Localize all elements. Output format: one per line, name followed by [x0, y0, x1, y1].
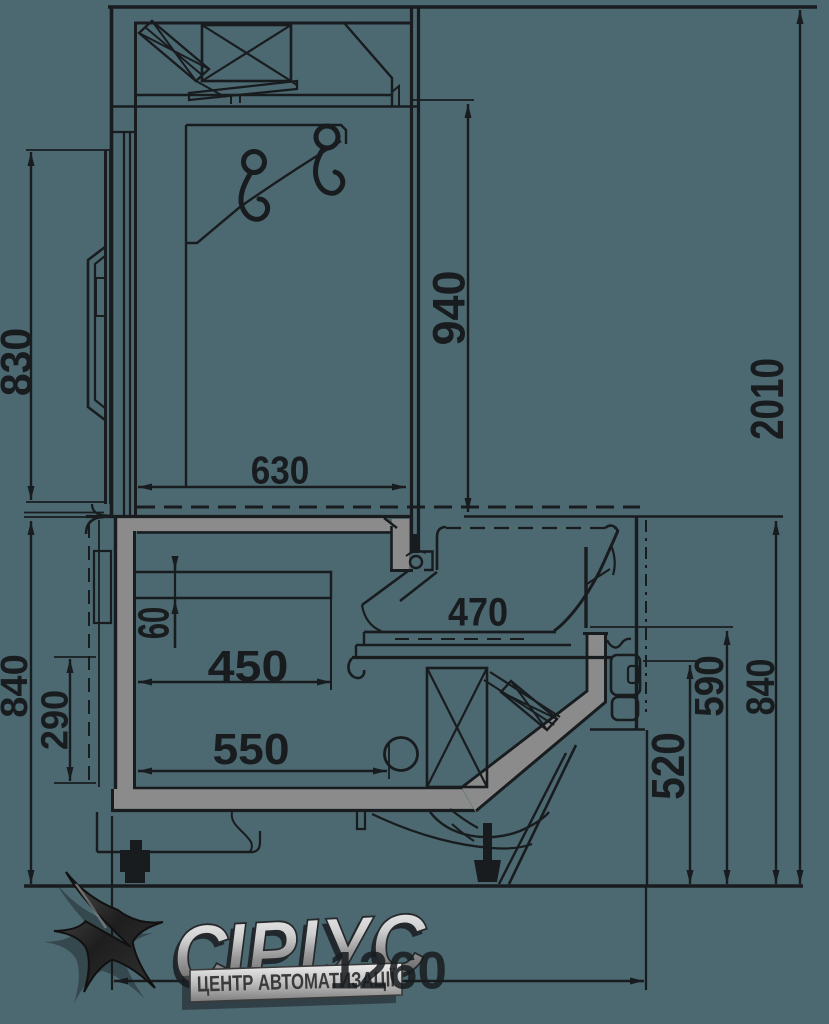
svg-text:1260: 1260	[329, 942, 447, 1001]
svg-text:840: 840	[0, 654, 36, 717]
svg-text:550: 550	[212, 724, 289, 774]
svg-text:450: 450	[208, 641, 289, 690]
svg-text:470: 470	[448, 591, 508, 635]
svg-text:290: 290	[32, 690, 75, 750]
svg-text:630: 630	[251, 448, 310, 492]
svg-text:2010: 2010	[741, 358, 793, 440]
svg-text:60: 60	[128, 607, 178, 639]
svg-text:520: 520	[644, 732, 695, 800]
svg-text:940: 940	[424, 270, 475, 345]
svg-text:830: 830	[0, 328, 41, 396]
svg-text:590: 590	[687, 655, 732, 717]
svg-text:840: 840	[737, 659, 782, 716]
